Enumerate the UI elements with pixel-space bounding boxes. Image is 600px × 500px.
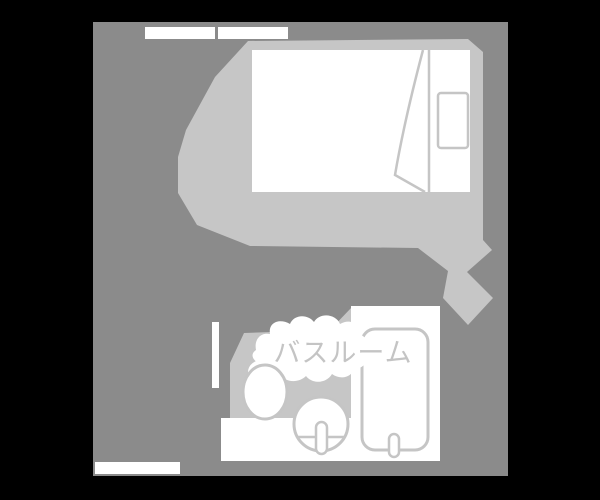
window-bar-left xyxy=(145,27,215,39)
bathroom-label: バスルーム xyxy=(273,338,412,369)
floorplan-svg: バスルーム バスルーム xyxy=(0,0,600,500)
bathroom-door-bar xyxy=(212,322,219,388)
floorplan: バスルーム バスルーム xyxy=(0,0,600,500)
toilet xyxy=(243,365,287,419)
bed-pillow xyxy=(438,93,468,148)
bed xyxy=(252,50,470,192)
bathtub-faucet xyxy=(389,434,399,457)
window-bar-right xyxy=(218,27,288,39)
sink-faucet xyxy=(316,422,327,454)
bottom-wall-opening xyxy=(95,462,180,474)
